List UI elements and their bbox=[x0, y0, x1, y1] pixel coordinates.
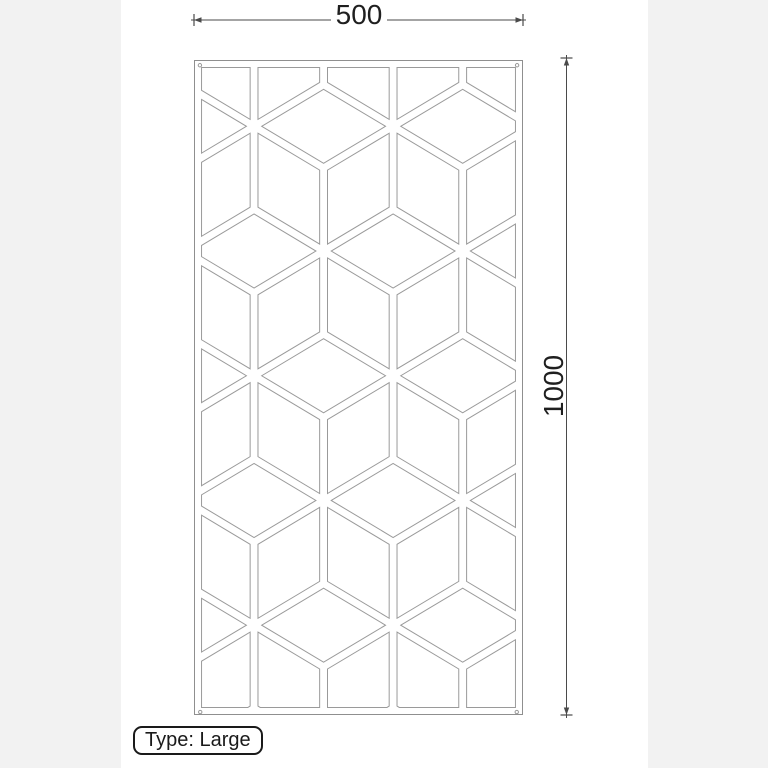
cutout-shape bbox=[258, 258, 320, 369]
dim-arrow-top bbox=[564, 58, 569, 66]
panel-drawing bbox=[194, 60, 523, 715]
cutout-shape bbox=[202, 99, 247, 153]
cutout-shape bbox=[328, 133, 390, 244]
cutout-shape bbox=[262, 588, 386, 662]
cutout-shape bbox=[397, 383, 459, 494]
product-image-canvas: 500 1000 Type: Large bbox=[121, 0, 648, 768]
screw-hole bbox=[515, 64, 518, 67]
dimension-height-label: 1000 bbox=[538, 355, 569, 417]
cutout-shape bbox=[258, 68, 320, 120]
cutout-shape bbox=[328, 68, 390, 120]
cutout-shape bbox=[470, 474, 515, 528]
cutout-pattern bbox=[195, 61, 522, 714]
cutout-shape bbox=[262, 89, 386, 163]
cutout-shape bbox=[397, 258, 459, 369]
cutout-shape bbox=[258, 632, 320, 707]
cutout-shape bbox=[202, 463, 316, 537]
cutout-shape bbox=[202, 598, 247, 652]
cutout-shape bbox=[397, 68, 459, 120]
cutout-shape bbox=[202, 68, 251, 120]
dimension-width-label: 500 bbox=[336, 0, 383, 30]
dim-arrow-bottom bbox=[564, 708, 569, 716]
cutout-shape bbox=[328, 507, 390, 618]
screw-hole bbox=[199, 710, 202, 713]
type-label: Type: Large bbox=[133, 726, 263, 755]
cutout-shape bbox=[331, 214, 455, 288]
cutout-shape bbox=[328, 632, 390, 707]
screw-hole bbox=[515, 710, 518, 713]
cutout-shape bbox=[202, 349, 247, 403]
cutout-shape bbox=[328, 383, 390, 494]
cutout-shape bbox=[328, 258, 390, 369]
cutout-shape bbox=[258, 133, 320, 244]
cutouts-group bbox=[202, 68, 516, 708]
cutout-shape bbox=[470, 224, 515, 278]
type-label-text: Type: Large bbox=[145, 729, 251, 751]
cutout-shape bbox=[401, 588, 516, 662]
cutout-shape bbox=[467, 640, 516, 708]
dim-arrow-left bbox=[194, 17, 202, 22]
cutout-shape bbox=[262, 339, 386, 413]
cutout-shape bbox=[401, 339, 516, 413]
cutout-shape bbox=[258, 507, 320, 618]
cutout-shape bbox=[258, 383, 320, 494]
dimension-width: 500 bbox=[191, 0, 526, 30]
cutout-shape bbox=[397, 632, 459, 707]
screw-hole bbox=[198, 64, 201, 67]
cutout-shape bbox=[397, 133, 459, 244]
cutout-shape bbox=[397, 507, 459, 618]
cutout-shape bbox=[401, 89, 516, 163]
cutout-shape bbox=[331, 463, 455, 537]
dimension-height: 1000 bbox=[538, 55, 573, 718]
cutout-shape bbox=[202, 632, 251, 707]
cutout-shape bbox=[467, 68, 516, 112]
dim-arrow-right bbox=[516, 17, 524, 22]
cutout-shape bbox=[202, 214, 316, 288]
